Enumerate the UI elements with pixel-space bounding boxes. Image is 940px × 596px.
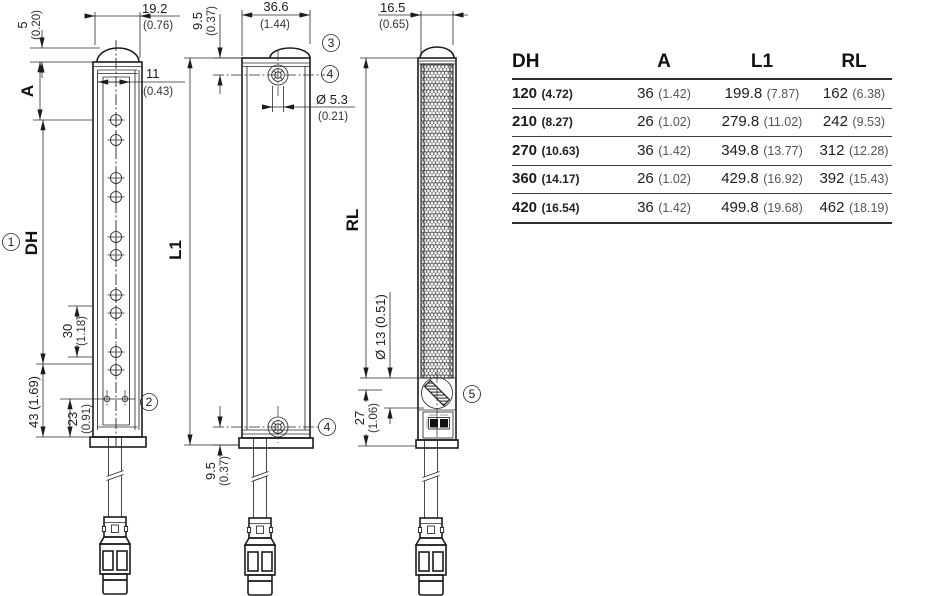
l1-value: 279.8: [722, 113, 760, 130]
dim-23-inch: (0.91): [81, 404, 93, 434]
callout-4-number: 4: [327, 67, 334, 81]
dip-switch: [423, 412, 453, 438]
label-A: A: [18, 85, 37, 97]
dim-36-6-inch: (1.44): [260, 19, 290, 31]
callout-5: 5: [464, 386, 481, 403]
dh-value: 120: [512, 85, 537, 102]
dim-A: A: [18, 62, 93, 120]
end-cap-foot: [239, 438, 313, 448]
reflector-view: [416, 47, 458, 595]
dim-19-2-inch: (0.76): [143, 20, 173, 32]
l1-value: 499.8: [721, 199, 759, 216]
dim-30: 30 (1.18): [60, 306, 93, 357]
callout-5-number: 5: [469, 387, 476, 401]
column-header-a: A: [620, 51, 708, 73]
table-row: 420 (16.54) 36 (1.42) 499.8 (19.68) 462 …: [512, 194, 892, 224]
a-value: 26: [637, 170, 654, 187]
dim-5-3: Ø 5.3 (0.21): [262, 86, 355, 123]
label-L1: L1: [166, 240, 185, 260]
l1-inch: (13.77): [763, 144, 803, 158]
dh-inch: (10.63): [541, 144, 579, 158]
callout-4-top: 4: [322, 66, 339, 83]
a-inch: (1.02): [658, 115, 691, 129]
dim-19-2-value: 19.2: [142, 1, 167, 16]
dim-L1: L1: [166, 58, 242, 445]
a-inch: (1.02): [658, 172, 691, 186]
table-row: 210 (8.27) 26 (1.02) 279.8 (11.02) 242 (…: [512, 109, 892, 138]
rl-inch: (12.28): [849, 144, 889, 158]
label-DH: DH: [22, 231, 41, 256]
dim-13-value: Ø 13 (0.51): [373, 294, 388, 360]
dim-9-5-top: 9.5 (0.37): [190, 6, 242, 94]
table-header-row: DH A L1 RL: [512, 45, 892, 80]
dim-5-value: 5: [15, 21, 30, 28]
callout-4-bottom: 4: [319, 419, 336, 436]
l1-value: 429.8: [721, 170, 759, 187]
l1-inch: (16.92): [763, 172, 803, 186]
rl-inch: (15.43): [849, 172, 889, 186]
rl-value: 312: [819, 142, 844, 159]
dim-27: 27 (1.06): [352, 390, 416, 446]
dome-cap: [420, 47, 454, 58]
dim-9-5-bottom-value: 9.5: [203, 462, 218, 480]
dimension-table: DH A L1 RL 120 (4.72) 36 (1.42) 199.8 (7…: [512, 45, 892, 224]
column-header-rl: RL: [816, 51, 892, 73]
callout-1: 1: [3, 234, 20, 251]
dh-inch: (16.54): [541, 201, 579, 215]
dim-11-inch: (0.43): [143, 86, 173, 98]
dim-30-inch: (1.18): [76, 316, 88, 346]
dim-16-5-value: 16.5: [380, 0, 405, 15]
dh-value: 420: [512, 199, 537, 216]
a-inch: (1.42): [658, 87, 691, 101]
dim-23: 23 (0.91): [65, 399, 93, 437]
rl-value: 162: [823, 85, 848, 102]
front-view: [60, 40, 146, 594]
dim-9-5-bottom-inch: (0.37): [219, 456, 231, 486]
rl-inch: (18.19): [849, 201, 889, 215]
a-inch: (1.42): [658, 201, 691, 215]
callout-2-number: 2: [146, 395, 153, 409]
side-view: [213, 48, 325, 595]
rl-value: 392: [819, 170, 844, 187]
label-RL: RL: [343, 209, 362, 232]
dim-5: 5 (0.20): [15, 10, 100, 78]
table-row: 360 (14.17) 26 (1.02) 429.8 (16.92) 392 …: [512, 166, 892, 195]
dim-5-3-value: Ø 5.3: [316, 92, 348, 107]
dim-43-value: 43 (1.69): [26, 376, 41, 428]
dome-cap: [97, 48, 139, 62]
dim-36-6-value: 36.6: [263, 0, 288, 14]
dim-5-3-inch: (0.21): [318, 111, 348, 123]
table-row: 120 (4.72) 36 (1.42) 199.8 (7.87) 162 (6…: [512, 80, 892, 109]
datasheet-page: 5 (0.20) 19.2 (0.76) 11 (0.43) A DH 1: [0, 0, 940, 596]
end-cap-foot: [90, 437, 146, 447]
l1-inch: (19.68): [763, 201, 803, 215]
dh-inch: (8.27): [541, 115, 572, 129]
dh-value: 270: [512, 142, 537, 159]
rl-inch: (6.38): [852, 87, 885, 101]
dim-5-inch: (0.20): [31, 10, 43, 40]
l1-value: 199.8: [725, 85, 763, 102]
a-inch: (1.42): [658, 144, 691, 158]
dim-27-inch: (1.06): [368, 403, 380, 433]
a-value: 26: [637, 113, 654, 130]
dim-19-2: 19.2 (0.76): [85, 1, 180, 58]
a-value: 36: [637, 85, 654, 102]
callout-1-number: 1: [8, 235, 15, 249]
l1-inch: (7.87): [767, 87, 800, 101]
dim-36-6: 36.6 (1.44): [242, 0, 310, 56]
dim-11-value: 11: [146, 66, 160, 81]
column-header-l1: L1: [708, 51, 816, 73]
dim-9-5-top-value: 9.5: [190, 12, 205, 30]
table-row: 270 (10.63) 36 (1.42) 349.8 (13.77) 312 …: [512, 137, 892, 166]
dh-value: 210: [512, 113, 537, 130]
callout-3: 3: [323, 35, 340, 52]
callout-4-number: 4: [324, 420, 331, 434]
dim-9-5-bottom: 9.5 (0.37): [203, 406, 239, 486]
dim-30-value: 30: [60, 324, 75, 338]
callout-3-number: 3: [328, 36, 335, 50]
a-value: 36: [637, 142, 654, 159]
dim-13: Ø 13 (0.51): [373, 292, 424, 424]
rl-value: 242: [823, 113, 848, 130]
callout-2: 2: [141, 394, 158, 411]
dim-27-value: 27: [352, 411, 367, 425]
l1-value: 349.8: [721, 142, 759, 159]
rl-inch: (9.53): [852, 115, 885, 129]
rl-value: 462: [819, 199, 844, 216]
dh-value: 360: [512, 170, 537, 187]
column-header-dh: DH: [512, 51, 620, 73]
dim-23-value: 23: [65, 412, 80, 426]
a-value: 36: [637, 199, 654, 216]
dim-9-5-top-inch: (0.37): [206, 6, 218, 36]
l1-inch: (11.02): [764, 115, 803, 129]
dim-16-5-inch: (0.65): [379, 19, 409, 31]
dh-inch: (14.17): [541, 172, 579, 186]
dim-16-5: 16.5 (0.65): [378, 0, 468, 56]
technical-drawing: 5 (0.20) 19.2 (0.76) 11 (0.43) A DH 1: [0, 0, 505, 596]
dh-inch: (4.72): [541, 87, 572, 101]
reflector-pattern: [421, 64, 453, 378]
dome-cap: [270, 48, 310, 58]
